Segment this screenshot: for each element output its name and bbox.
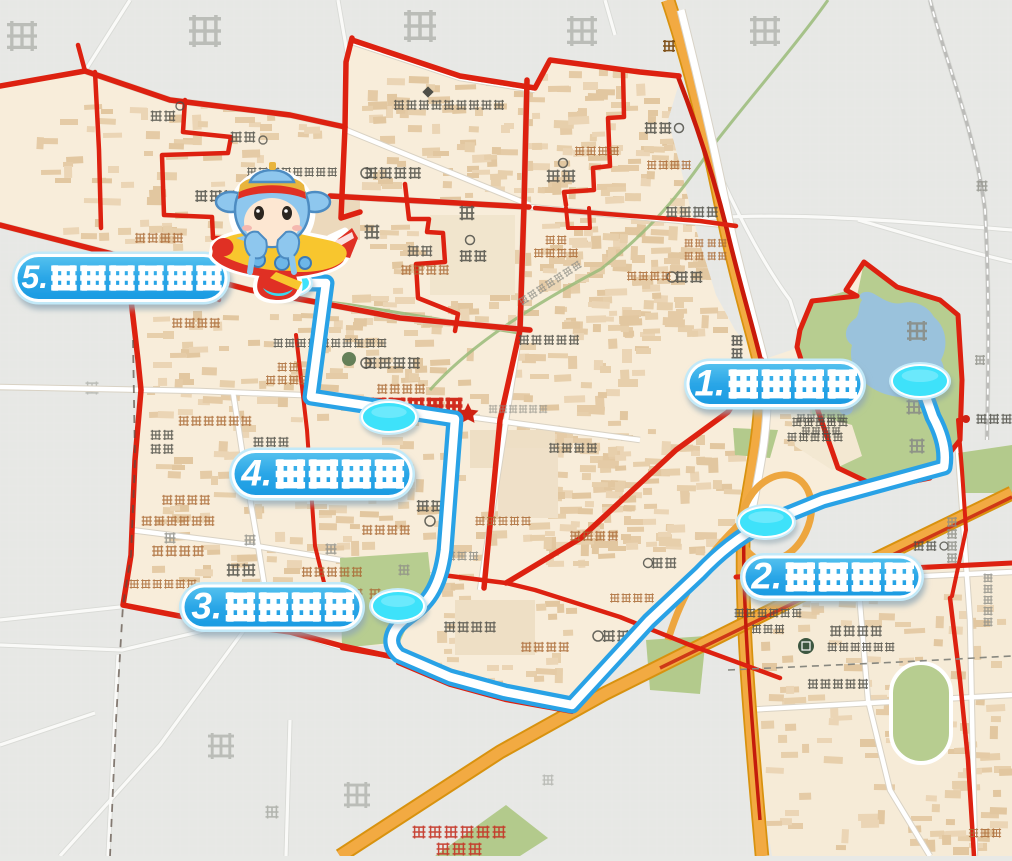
svg-text:2.: 2. [750,555,782,596]
svg-text:4.: 4. [240,452,272,493]
svg-text:3.: 3. [191,585,222,626]
svg-text:5.: 5. [22,259,49,295]
svg-text:1.: 1. [694,362,725,403]
